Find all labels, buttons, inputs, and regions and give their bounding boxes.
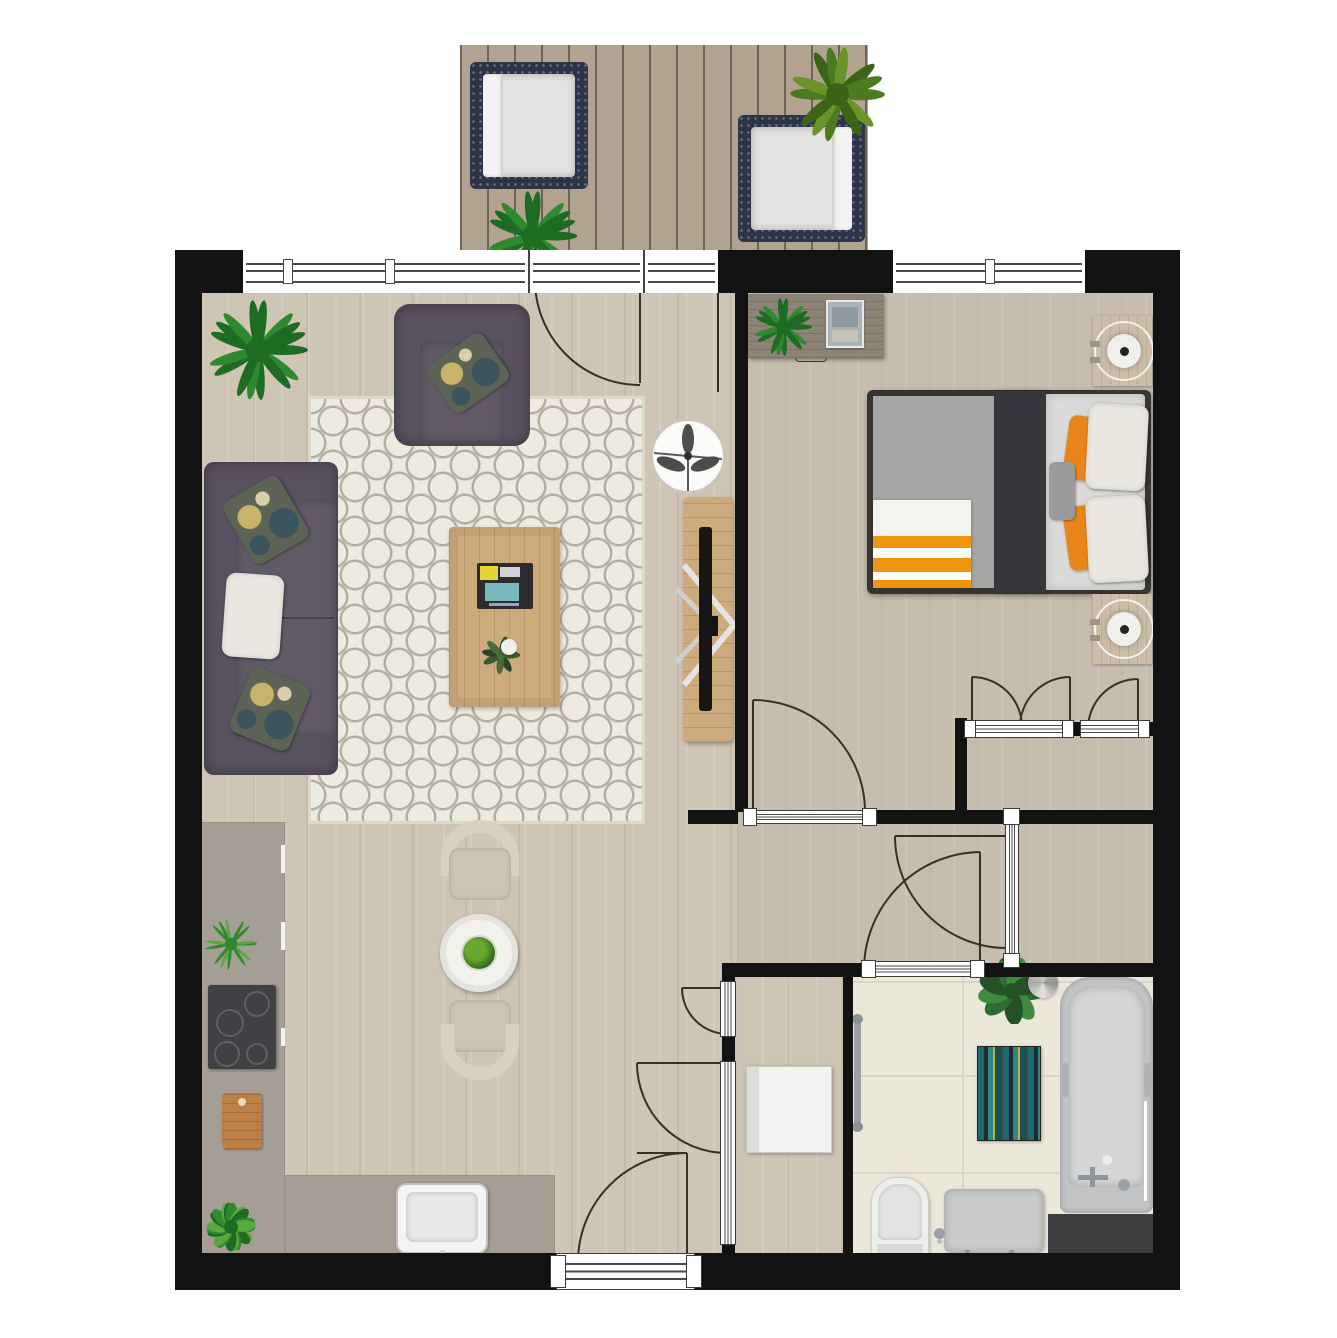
tub-grip <box>1144 1063 1151 1097</box>
bed-pillow <box>1085 494 1149 583</box>
lounge-cushion <box>483 74 575 177</box>
living-room-window <box>243 250 528 293</box>
door-jamb <box>743 808 757 826</box>
bedroom-window <box>893 250 1085 293</box>
door-jamb <box>550 1255 566 1288</box>
ceiling-fan-icon <box>649 417 727 495</box>
entrance-door-threshold <box>556 1253 695 1290</box>
chair-backrest <box>441 1024 519 1080</box>
lounge-headrest <box>483 74 503 177</box>
lamp-arm <box>1090 357 1100 363</box>
bottom-wall-right <box>695 1253 1180 1290</box>
gray-accent-pillow <box>1049 462 1075 520</box>
toilet-brush <box>934 1228 945 1239</box>
bedroom-door-threshold <box>743 810 877 824</box>
burner <box>246 1043 268 1065</box>
door-jamb <box>861 960 876 978</box>
photo-content <box>832 307 858 327</box>
dining-chair <box>441 998 519 1080</box>
armchair <box>394 304 530 446</box>
photo-content <box>832 330 858 342</box>
bathroom-wall-stub <box>845 963 862 977</box>
storage-upper-door-threshold <box>720 981 736 1037</box>
window-glazing <box>648 263 715 283</box>
cooktop <box>208 985 276 1069</box>
dining-chair <box>441 820 519 902</box>
hallway-door-threshold <box>1005 824 1019 968</box>
table-lamp <box>1094 321 1154 381</box>
photo-frame <box>826 300 864 348</box>
burner <box>214 1041 240 1067</box>
lamp-arm <box>1090 635 1100 641</box>
shower-mat <box>1048 1214 1153 1258</box>
bottom-wall-left <box>175 1253 556 1290</box>
window-mullion <box>283 259 293 284</box>
bathroom-door-threshold <box>862 961 985 977</box>
chair-seat <box>449 848 511 900</box>
door-jamb <box>1138 720 1150 738</box>
bathtub <box>1060 977 1153 1213</box>
bedroom-door-wall-stub <box>688 810 738 824</box>
lounge-chair <box>470 62 588 189</box>
lamp-finial <box>1120 625 1129 634</box>
balcony-side-pane <box>645 250 718 293</box>
shower-rod <box>1144 1101 1147 1201</box>
tub-faucet-stem <box>1090 1167 1095 1187</box>
right-wall <box>1153 250 1180 1290</box>
window-mullion <box>985 259 995 284</box>
cabinet-handle <box>281 845 285 873</box>
desk-plant <box>752 298 814 356</box>
cabinet-handle <box>281 1028 285 1046</box>
kitchen-sink <box>396 1183 488 1254</box>
bed-blanket <box>994 391 1046 593</box>
storage-right-wall <box>843 977 853 1255</box>
magazine <box>485 583 519 601</box>
closet-bottom-wall <box>955 810 1157 824</box>
rail-end <box>852 1122 863 1132</box>
tub-drain <box>1102 1155 1112 1165</box>
rail-end <box>852 1014 863 1024</box>
door-jamb <box>1003 808 1020 825</box>
lounge-headrest <box>832 127 852 230</box>
door-jamb <box>970 960 985 978</box>
desk-drawer-handle <box>795 358 827 362</box>
sofa <box>204 462 338 775</box>
storage-lower-door-threshold <box>720 1061 736 1245</box>
storage-top-wall <box>722 963 852 977</box>
left-wall <box>175 250 202 1290</box>
living-bedroom-wall <box>735 285 748 812</box>
table-plant <box>463 937 495 969</box>
vanity-sink <box>944 1189 1044 1253</box>
floor-plan-canvas <box>0 0 1337 1338</box>
balcony-door-threshold <box>528 250 645 293</box>
fern-plant <box>208 300 308 400</box>
cutting-board <box>222 1093 262 1149</box>
striped-bath-rug <box>977 1046 1041 1141</box>
bed-pillow <box>1085 402 1149 491</box>
decor-vase <box>501 639 517 655</box>
sink-basin <box>406 1192 478 1242</box>
magazine <box>489 603 519 606</box>
window-mullion <box>385 259 395 284</box>
table-lamp <box>1094 599 1154 659</box>
lamp-arm <box>1090 619 1100 625</box>
door-jamb <box>862 808 877 826</box>
white-pillow <box>221 572 285 660</box>
cabinet-handle <box>281 922 285 950</box>
bed-throw <box>873 500 971 588</box>
door-jamb <box>964 720 976 738</box>
washer-panel <box>747 1067 759 1152</box>
board-handle-hole <box>238 1098 246 1106</box>
lounge-cushion <box>751 127 852 230</box>
window-glazing <box>533 263 640 283</box>
shrub-plant <box>202 1198 260 1256</box>
burner <box>244 991 270 1017</box>
tv <box>699 527 712 711</box>
magazine-tray <box>477 563 533 609</box>
door-jamb <box>1062 720 1074 738</box>
door-jamb <box>1003 953 1020 968</box>
double-bed <box>867 390 1151 594</box>
door-jamb <box>686 1255 702 1288</box>
toilet-seat <box>878 1184 922 1240</box>
balcony-deck <box>460 45 868 250</box>
burner <box>216 1009 244 1037</box>
toilet <box>871 1177 929 1259</box>
lamp-finial <box>1120 347 1129 356</box>
magazine <box>500 567 520 577</box>
palm-plant <box>790 47 885 142</box>
closet-double-door-threshold <box>966 720 1072 738</box>
tub-grip <box>1062 1063 1069 1097</box>
coffee-table <box>449 527 560 707</box>
tub-tap <box>1118 1179 1130 1191</box>
hall-wall <box>877 810 965 824</box>
washing-machine <box>746 1066 832 1153</box>
towel-rail <box>854 1018 861 1128</box>
dining-table <box>440 914 518 992</box>
herb-plant <box>205 918 257 970</box>
magazine <box>480 566 498 580</box>
lamp-arm <box>1090 341 1100 347</box>
